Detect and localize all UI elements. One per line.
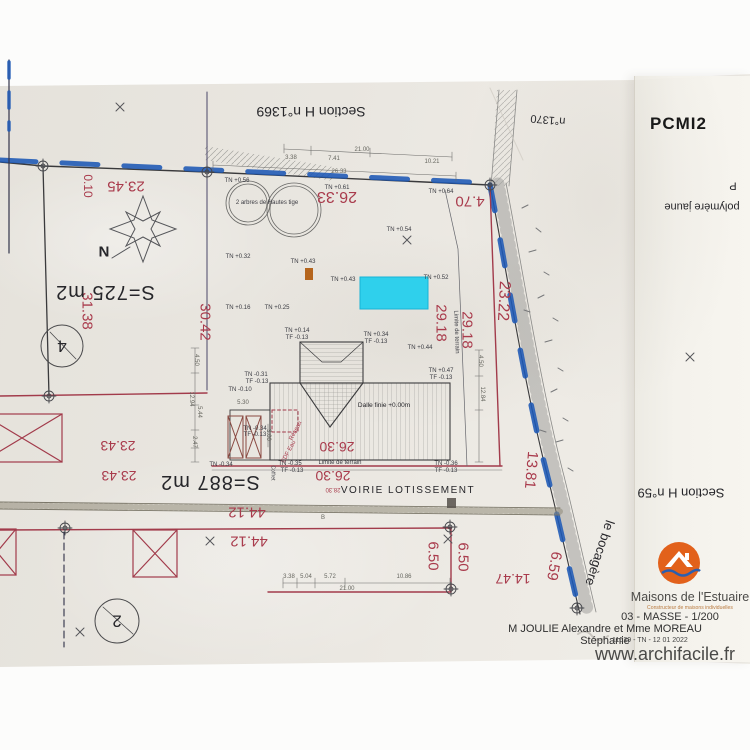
dimension-label: 23.43 xyxy=(101,469,136,483)
tree-symbols xyxy=(226,181,321,237)
stamp-pcmi2: PCMI2 xyxy=(650,114,707,134)
dimension-label: 23.43 xyxy=(100,439,135,453)
level-label: TN -0.10 xyxy=(228,387,251,393)
compass-rose xyxy=(110,196,176,262)
dimension-chain-label: 5.04 xyxy=(300,574,312,580)
dimension-chain-label: 12.84 xyxy=(479,386,485,401)
level-label: TN +0.52 xyxy=(424,275,449,281)
watermark: www.archifacile.fr xyxy=(582,644,748,665)
level-label: TN +0.43 xyxy=(331,277,356,283)
company-name: Maisons de l'Estuaire xyxy=(630,590,750,604)
dimension-label: 6.50 xyxy=(456,542,471,571)
dimension-label: 13.81 xyxy=(522,451,540,490)
dimension-label: 44.12 xyxy=(230,534,268,549)
level-label: TF -0.13 xyxy=(281,468,304,474)
dimension-label: 26.30 xyxy=(315,469,350,483)
dimension-label: 28.30 xyxy=(325,486,340,492)
lot-number: 2 xyxy=(112,613,121,630)
dimension-chain-label: 26.33 xyxy=(331,169,346,175)
dimension-label: 6.50 xyxy=(426,541,441,570)
sheet-title: 03 - MASSE - 1/200 xyxy=(590,611,750,623)
level-label: TF -0.13 xyxy=(246,379,269,385)
level-label: TN -0.34 xyxy=(209,462,232,468)
dimension-chain-label: 10.21 xyxy=(424,159,439,165)
utility-box-icon xyxy=(305,268,313,280)
level-label: TN +0.61 xyxy=(325,185,350,191)
area-label: S=887 m2 xyxy=(160,472,260,492)
dimension-label: 23.22 xyxy=(494,281,512,322)
existing-building-symbols xyxy=(0,414,177,577)
boundary-note: Limite de terrain xyxy=(318,460,361,466)
scanned-site-plan: 0.1023.4526.334.7031.3830.4229.1829.1823… xyxy=(0,0,750,750)
dimension-chain-label: 5.72 xyxy=(324,574,336,580)
road-hatch-band xyxy=(0,506,560,512)
level-label: TF -0.13 xyxy=(244,432,267,438)
level-label: TN -0.36 xyxy=(434,461,457,467)
dimension-chain-label: 4.50 xyxy=(477,355,483,367)
level-label: TN -0.35 xyxy=(278,461,301,467)
level-label: TF -0.13 xyxy=(365,339,388,345)
level-label: TF -0.13 xyxy=(435,468,458,474)
dimension-label: 14.47 xyxy=(495,572,530,586)
level-label: TN +0.16 xyxy=(226,305,251,311)
level-label: TN +0.34 xyxy=(364,332,389,338)
company-tagline: Constructeur de maisons individuelles xyxy=(639,605,741,610)
level-label: TN +0.43 xyxy=(291,259,316,265)
parcel-section-label: Section H n°59 xyxy=(638,487,725,500)
road-label: VOIRIE LOTISSEMENT xyxy=(341,486,475,496)
lot-number: 4 xyxy=(57,338,66,355)
company-logo-icon xyxy=(655,540,703,592)
level-label: TN +0.54 xyxy=(387,227,412,233)
dimension-chain-label: 12.94 xyxy=(188,391,194,406)
dimension-label: 26.30 xyxy=(319,440,354,454)
dimension-chain-label: 3.00 xyxy=(265,429,271,441)
dimension-chain-label: 5.30 xyxy=(237,400,249,406)
tree-note: 2 arbres de Hautes tige xyxy=(236,200,298,206)
dimension-chain-label: 7.41 xyxy=(328,156,340,162)
level-label: TN +0.25 xyxy=(265,305,290,311)
slab-level-label: Dalle finie +0.00m xyxy=(358,403,410,410)
plan-reference: 11529 - TN - 12 01 2022 xyxy=(570,637,730,644)
dimension-chain-label: 3.38 xyxy=(285,155,297,161)
parcel-section-label: Section H n°1369 xyxy=(256,105,365,119)
level-label: TN +0.56 xyxy=(225,178,250,184)
dimension-label: 29.18 xyxy=(434,304,449,342)
dimension-label: 4.70 xyxy=(455,194,484,209)
level-label: TF -0.13 xyxy=(286,335,309,341)
dimension-chain-label: 4.50 xyxy=(193,354,199,366)
dimension-chain-label: 5.44 xyxy=(196,406,202,418)
road-point-label: B xyxy=(321,515,325,521)
dimension-chain-label: 21.00 xyxy=(339,586,354,592)
dimension-label: 23.45 xyxy=(107,179,145,194)
utility-label: Coffret xyxy=(270,466,275,481)
parcel-section-label: n°1370 xyxy=(530,112,566,126)
dimension-chain-label: 3.38 xyxy=(283,574,295,580)
material-note: P xyxy=(729,180,736,191)
level-label: TF -0.13 xyxy=(430,375,453,381)
highlight-rectangle xyxy=(360,277,428,309)
level-label: TN +0.64 xyxy=(429,189,454,195)
dimension-label: 0.10 xyxy=(82,174,94,197)
dimension-chain-label: 21.00 xyxy=(354,147,369,153)
level-label: TN -0.31 xyxy=(244,372,267,378)
dimension-label: 30.42 xyxy=(198,303,213,341)
dimension-label: 44.12 xyxy=(228,505,266,520)
level-label: TN +0.47 xyxy=(429,368,454,374)
dimension-label: 29.18 xyxy=(460,311,475,349)
north-label: N xyxy=(99,244,110,259)
area-label: S=725 m2 xyxy=(55,282,155,302)
level-label: TN +0.14 xyxy=(285,328,310,334)
level-label: TN +0.44 xyxy=(408,345,433,351)
dimension-chain-label: 2.47 xyxy=(191,436,197,448)
dimension-chain-label: 10.86 xyxy=(396,574,411,580)
level-label: TN +0.32 xyxy=(226,254,251,260)
lot-number-circles xyxy=(41,325,139,643)
material-note: polymère jaune xyxy=(664,201,739,212)
